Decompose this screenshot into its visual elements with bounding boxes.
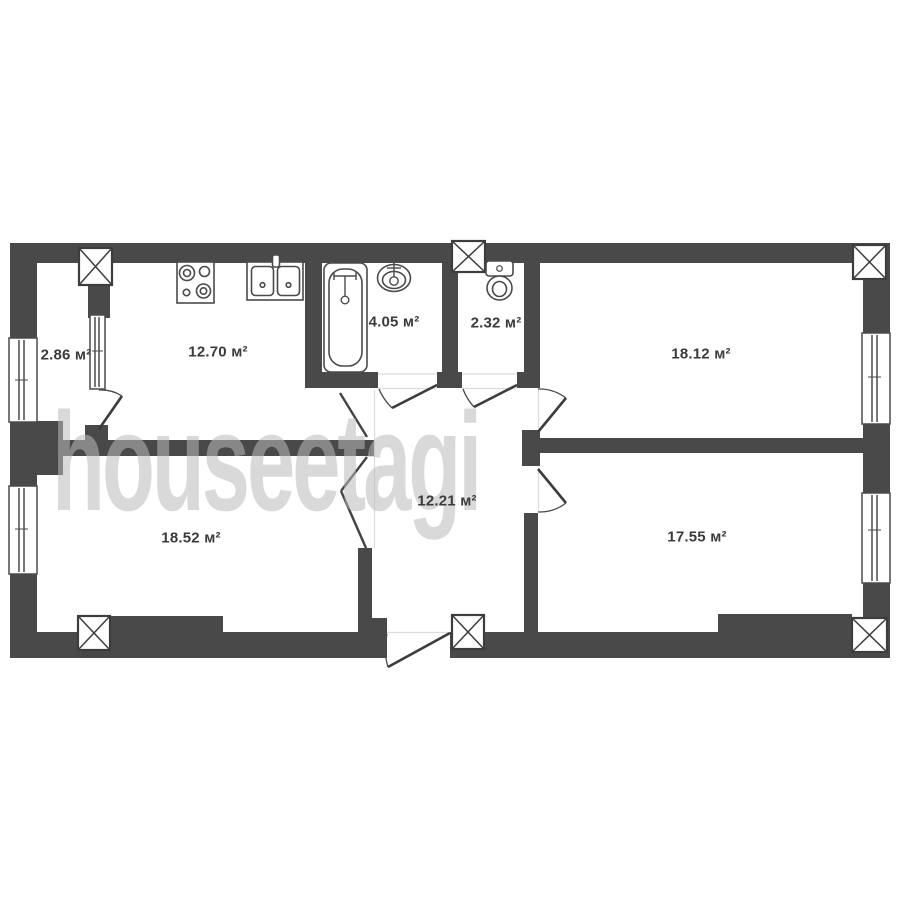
wall-hall-lower (524, 513, 538, 634)
wall-left-pier (37, 421, 63, 475)
wall-mid-right (540, 438, 863, 453)
shaft-bottom-left (78, 616, 110, 650)
open-passage-break (340, 393, 367, 548)
room-area-label-bathroom: 4.05 м² (369, 314, 420, 331)
shaft-top-right (853, 245, 886, 279)
wall-right (863, 243, 890, 658)
shaft-top-left (79, 248, 112, 285)
wall-left (10, 243, 37, 658)
room-area-label-hallway: 12.21 м² (417, 493, 476, 510)
bathtub-icon (324, 263, 367, 372)
window-right-lower (862, 493, 890, 583)
window-left-upper (9, 338, 37, 422)
room-area-label-toilet: 2.32 м² (471, 315, 522, 332)
stove-icon (177, 262, 214, 303)
room-area-label-room-bottom-left: 18.52 м² (161, 530, 220, 547)
washbasin-icon (378, 263, 411, 292)
floor-plan: houseetagi 2.86 м² 12.70 м² 4.05 м² 2.32… (0, 0, 900, 900)
toilet-icon (486, 261, 513, 300)
wall-top (10, 243, 890, 263)
door-room-top-right (538, 389, 566, 432)
room-area-label-room-top-right: 18.12 м² (671, 346, 730, 363)
wall-kitchen-bottom (37, 440, 374, 456)
wall-bathroom-toilet (442, 263, 458, 378)
walls (10, 243, 890, 659)
room-area-label-loggia: 2.86 м² (41, 347, 92, 364)
room-area-label-room-bottom-right: 17.55 м² (667, 529, 726, 546)
window-right-upper (862, 333, 890, 424)
window-loggia-partition (90, 315, 105, 389)
window-left-lower (9, 486, 37, 574)
wall-toilet-room1812 (524, 243, 540, 388)
door-loggia (99, 390, 122, 429)
wall-pier-bottom-right (718, 614, 852, 632)
shaft-top-center (452, 241, 485, 272)
floor-plan-drawing (0, 0, 900, 900)
wall-bathroom-bottom (305, 372, 378, 388)
shaft-bottom-center (452, 615, 484, 649)
shaft-bottom-right (852, 618, 887, 652)
door-room-bottom-right (538, 469, 566, 512)
kitchen-sink-icon (247, 255, 303, 300)
wall-room1852-hall-foot (358, 618, 387, 632)
room-area-label-kitchen: 12.70 м² (188, 344, 247, 361)
entrance-opening (387, 631, 450, 659)
wall-hall-mid-stub (522, 430, 540, 466)
wall-kitchen-bathroom (305, 263, 322, 388)
